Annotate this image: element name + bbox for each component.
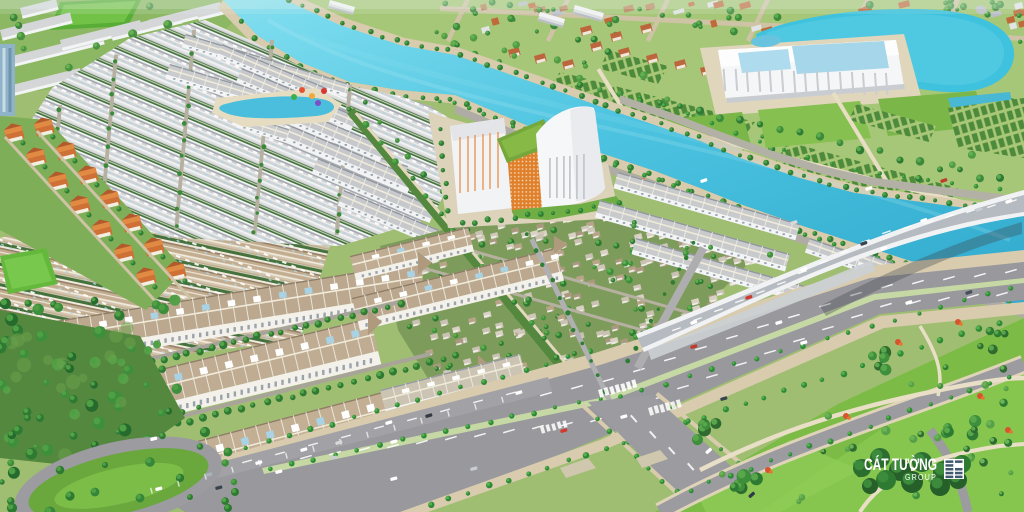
- svg-text:GROUP: GROUP: [905, 472, 937, 482]
